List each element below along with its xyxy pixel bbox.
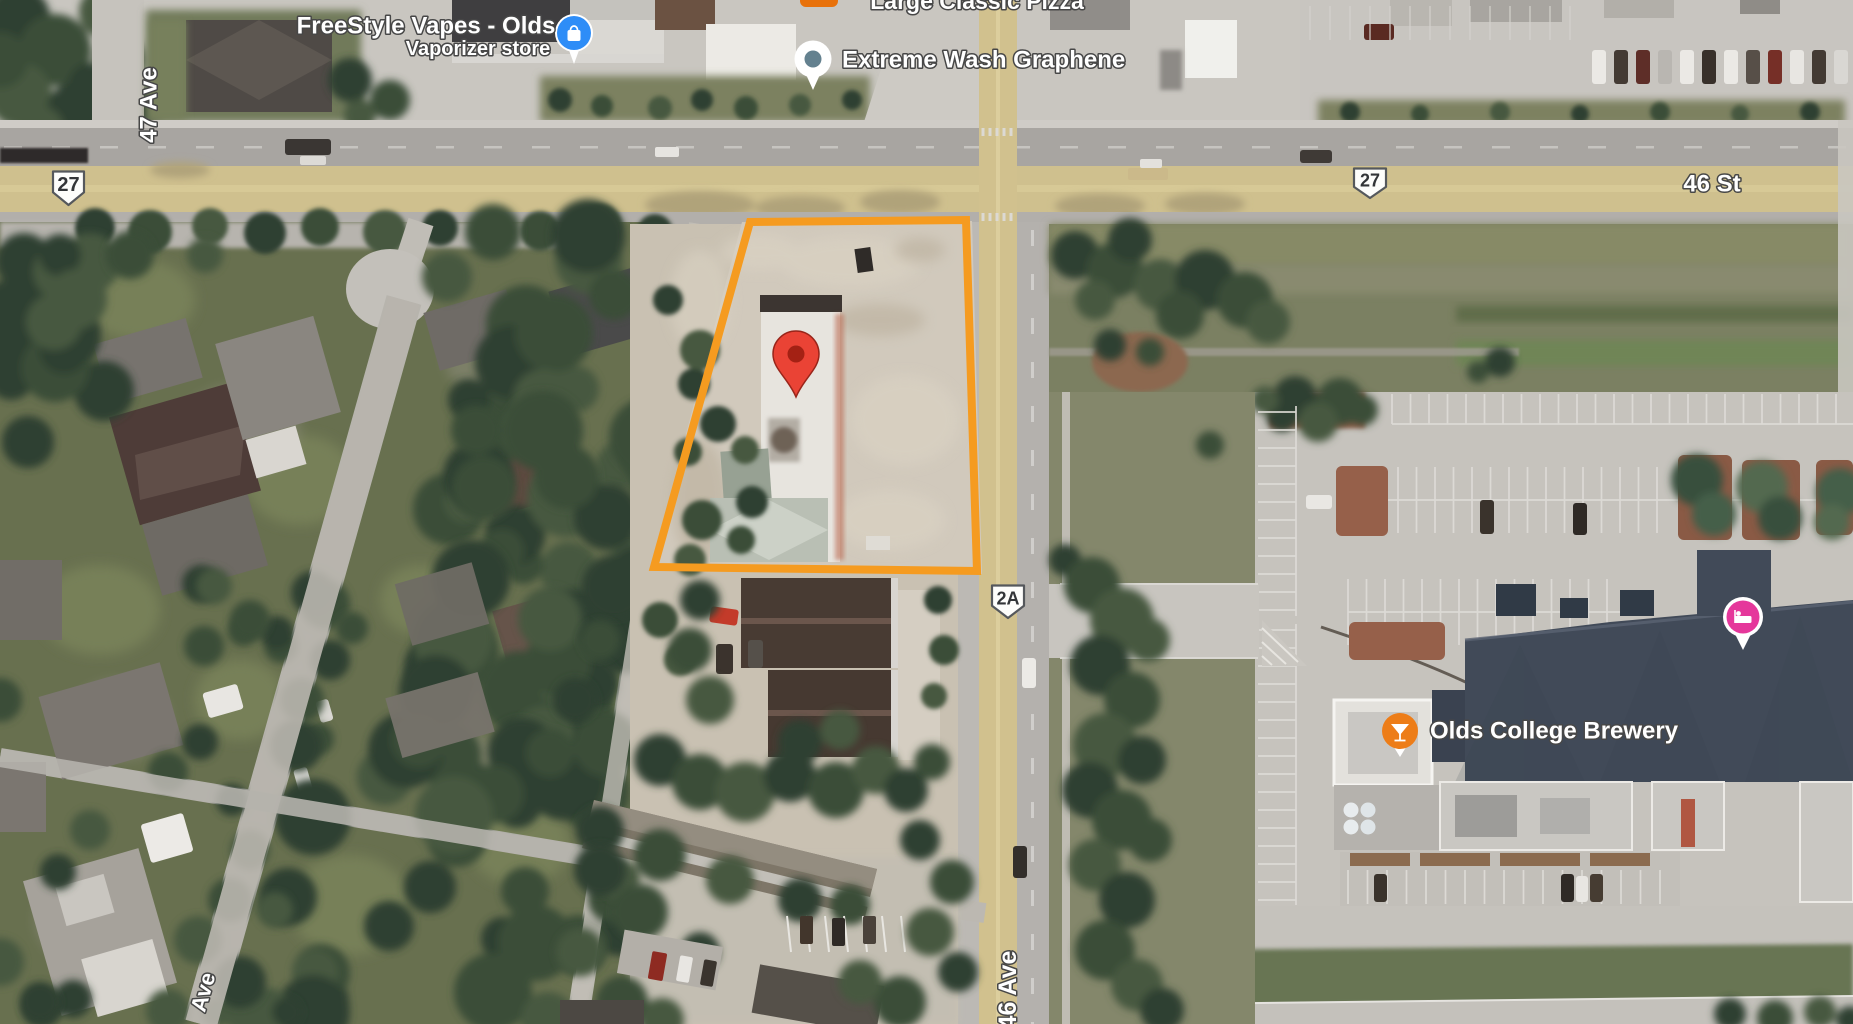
- svg-text:FreeStyle Vapes - Olds: FreeStyle Vapes - Olds: [297, 13, 556, 40]
- svg-text:Extreme Wash Graphene: Extreme Wash Graphene: [842, 47, 1125, 74]
- svg-text:Olds College Brewery: Olds College Brewery: [1430, 718, 1679, 745]
- svg-text:47 Ave: 47 Ave: [136, 67, 163, 143]
- svg-text:46 Ave: 46 Ave: [994, 951, 1022, 1024]
- svg-text:2A: 2A: [996, 589, 1019, 609]
- svg-text:Large Classic Pizza: Large Classic Pizza: [870, 0, 1084, 14]
- svg-text:27: 27: [57, 174, 79, 196]
- svg-text:27: 27: [1360, 170, 1380, 190]
- svg-text:Vaporizer store: Vaporizer store: [406, 38, 551, 60]
- svg-text:46 St: 46 St: [1683, 171, 1740, 198]
